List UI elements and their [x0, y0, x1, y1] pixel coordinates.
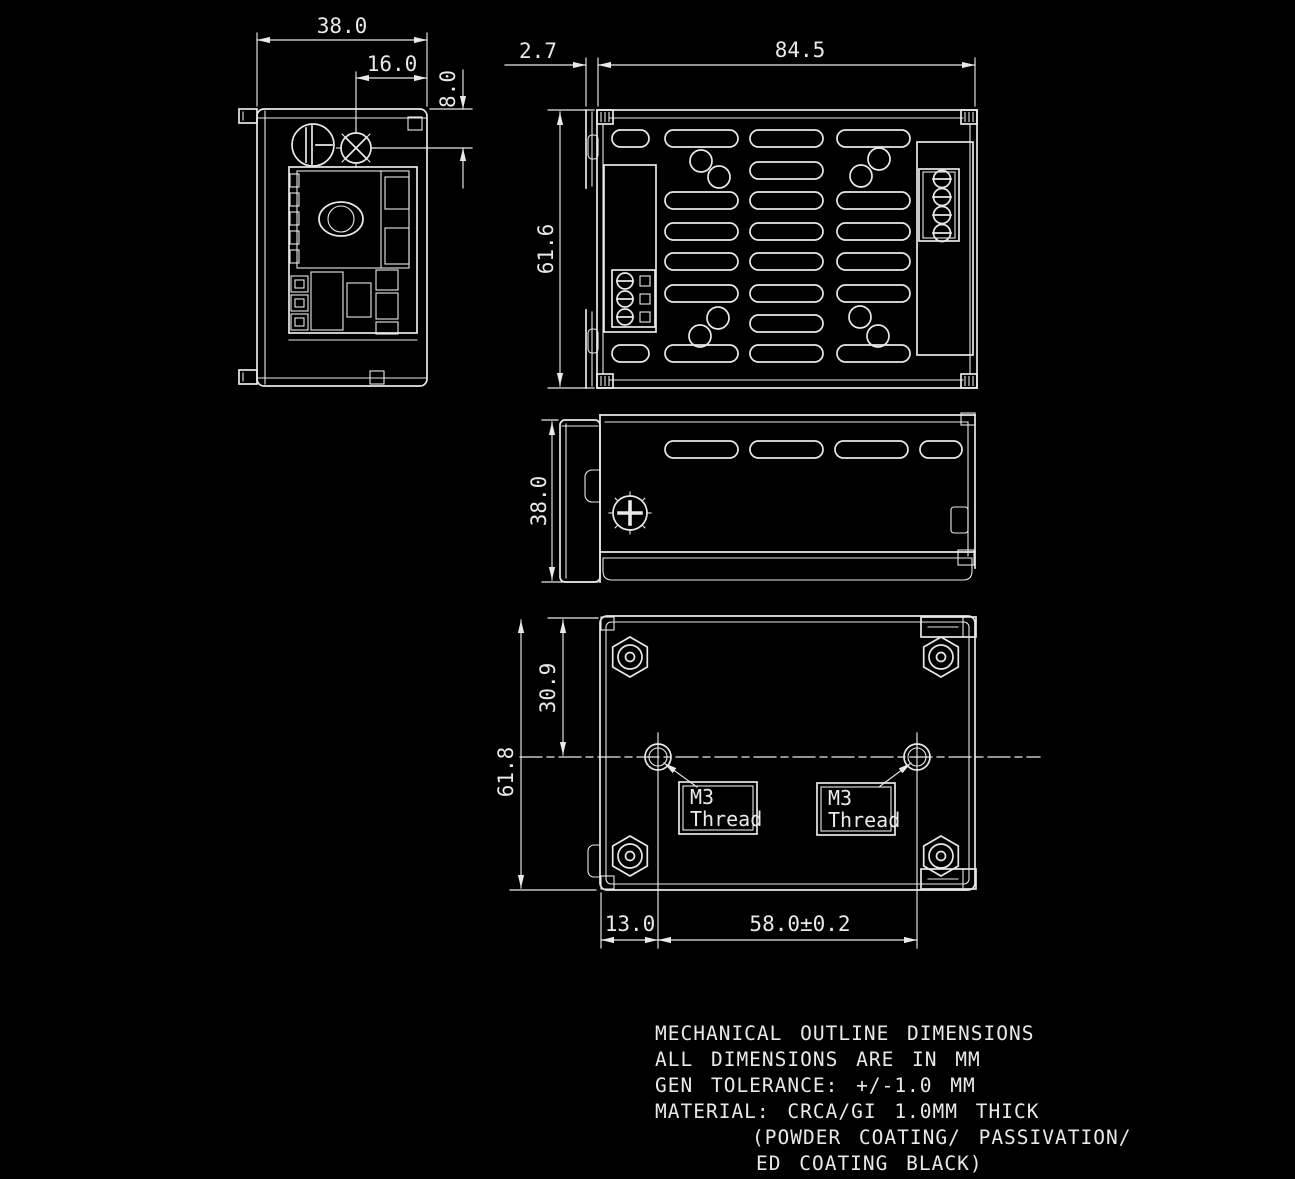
dim-bottom-hole-spacing: 58.0±0.2	[749, 912, 850, 936]
m3-thread-label-line1: M3	[828, 786, 852, 810]
hex-insert	[924, 836, 959, 876]
side-view-geometry	[560, 413, 975, 582]
end-view-dimensions: 38.0 16.0 8.0	[257, 14, 472, 188]
note-line-5: (POWDER COATING/ PASSIVATION/	[752, 1126, 1131, 1149]
drawing-notes: MECHANICAL OUTLINE DIMENSIONS ALL DIMENS…	[655, 1022, 1131, 1175]
dim-end-screw-height: 8.0	[436, 70, 460, 108]
bottom-view: M3 Thread M3 Thread 30.9 61.8 13.0	[494, 616, 1040, 948]
bottom-view-geometry	[520, 616, 1040, 948]
m3-thread-callout-right: M3 Thread	[817, 763, 911, 835]
m3-thread-label-line1: M3	[690, 785, 714, 809]
hex-insert	[613, 637, 648, 677]
note-line-3: GEN TOLERANCE: +/-1.0 MM	[655, 1074, 976, 1097]
hex-insert	[613, 836, 648, 876]
hex-insert	[924, 637, 959, 677]
dim-bottom-hole-row-offset: 30.9	[536, 663, 560, 714]
dim-top-width: 84.5	[775, 38, 826, 62]
note-line-1: MECHANICAL OUTLINE DIMENSIONS	[655, 1022, 1034, 1045]
m3-thread-label-line2: Thread	[828, 808, 900, 832]
note-line-4: MATERIAL: CRCA/GI 1.0MM THICK	[655, 1100, 1039, 1123]
top-view: 2.7 84.5 61.6	[505, 38, 977, 388]
end-view-geometry	[239, 109, 427, 386]
ground-screw-icon	[609, 492, 651, 534]
dim-end-width: 38.0	[317, 14, 368, 38]
dim-bottom-hole-left-offset: 13.0	[605, 912, 656, 936]
screw-icon	[337, 129, 376, 168]
note-line-6: ED COATING BLACK)	[756, 1152, 983, 1175]
output-terminal-block	[919, 169, 959, 242]
input-terminal-block	[612, 270, 655, 327]
mechanical-drawing: 38.0 16.0 8.0	[0, 0, 1295, 1179]
potentiometer-icon	[292, 124, 334, 166]
top-view-dimensions: 2.7 84.5 61.6	[505, 38, 975, 388]
side-view: 38.0	[527, 413, 975, 582]
m3-thread-callout-left: M3 Thread	[664, 763, 762, 834]
dim-top-depth: 61.6	[534, 224, 558, 275]
dim-end-screw-offset: 16.0	[367, 52, 418, 76]
drawing-canvas: 38.0 16.0 8.0	[0, 0, 1295, 1179]
top-view-geometry	[586, 110, 977, 388]
end-view: 38.0 16.0 8.0	[239, 14, 472, 386]
dim-bottom-depth: 61.8	[494, 747, 518, 798]
m3-thread-label-line2: Thread	[690, 807, 762, 831]
side-view-dimensions: 38.0	[527, 420, 598, 582]
dim-side-height: 38.0	[527, 476, 551, 527]
note-line-2: ALL DIMENSIONS ARE IN MM	[655, 1048, 981, 1071]
dim-top-lip: 2.7	[519, 39, 557, 63]
vent-holes	[689, 148, 890, 347]
